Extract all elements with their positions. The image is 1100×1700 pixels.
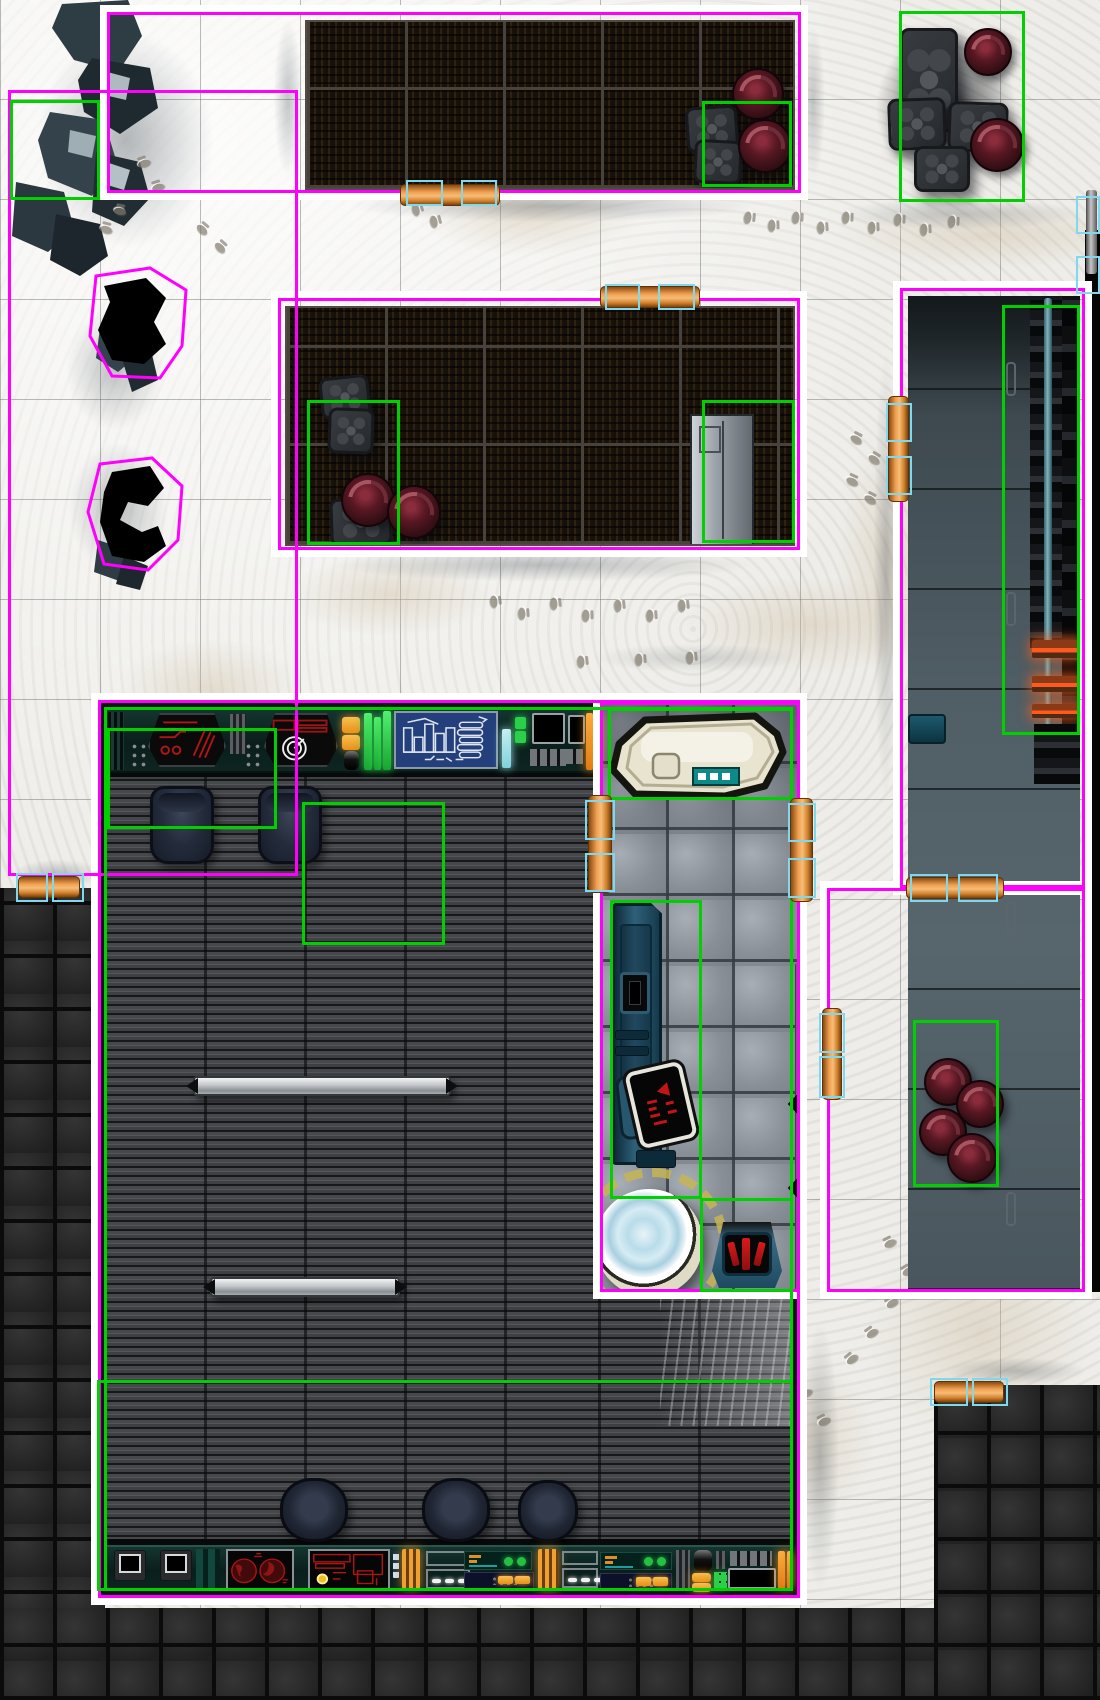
cyan-door-marker[interactable] [1076, 256, 1100, 294]
cyan-door-marker[interactable] [658, 284, 695, 310]
cyan-door-marker[interactable] [819, 1056, 845, 1098]
green-annotation-obj-locker[interactable] [610, 900, 702, 1199]
dark-tile-floor [0, 888, 105, 1700]
cyan-door-marker[interactable] [930, 1378, 968, 1406]
cyan-door-marker[interactable] [585, 853, 615, 892]
green-annotation-obj-seats[interactable] [107, 728, 277, 829]
cyan-door-marker[interactable] [788, 858, 816, 898]
cyan-door-marker[interactable] [605, 284, 640, 310]
green-annotation-obj-hangar-south[interactable] [97, 1380, 793, 1591]
green-annotation-obj-rock-ledge[interactable] [10, 100, 100, 200]
cyan-door-marker[interactable] [958, 874, 998, 902]
green-annotation-obj-door-central[interactable] [702, 400, 795, 543]
green-annotation-obj-floor-cell[interactable] [302, 802, 445, 945]
green-annotation-obj-escape-pod[interactable] [608, 708, 793, 800]
dark-tile-floor [934, 1385, 1100, 1700]
cyan-door-marker[interactable] [886, 456, 912, 495]
cyan-door-marker[interactable] [16, 873, 48, 902]
cyan-door-marker[interactable] [585, 800, 615, 840]
cyan-door-marker[interactable] [788, 803, 816, 842]
green-annotation-obj-thruster-console[interactable] [700, 1198, 793, 1292]
cyan-door-marker[interactable] [1076, 196, 1100, 234]
green-annotation-obj-cargo-central[interactable] [307, 400, 400, 545]
footprint [550, 597, 558, 610]
cyan-door-marker[interactable] [972, 1378, 1008, 1406]
cyan-door-marker[interactable] [52, 873, 84, 902]
magenta-annotation-zone-north-strip[interactable] [107, 12, 801, 193]
cyan-door-marker[interactable] [406, 180, 443, 206]
green-annotation-obj-barrels-bay[interactable] [913, 1020, 999, 1187]
green-annotation-obj-cargo-north[interactable] [702, 101, 792, 187]
footprint [614, 599, 622, 612]
green-annotation-obj-machinery[interactable] [1002, 305, 1080, 735]
footprint [582, 609, 589, 621]
battle-map [0, 0, 1100, 1700]
green-annotation-obj-cargo-snow[interactable] [899, 11, 1025, 202]
footprint [768, 219, 775, 231]
cyan-door-marker[interactable] [461, 180, 497, 206]
cyan-door-marker[interactable] [886, 403, 912, 442]
cyan-door-marker[interactable] [910, 874, 948, 902]
cyan-door-marker[interactable] [819, 1013, 845, 1053]
